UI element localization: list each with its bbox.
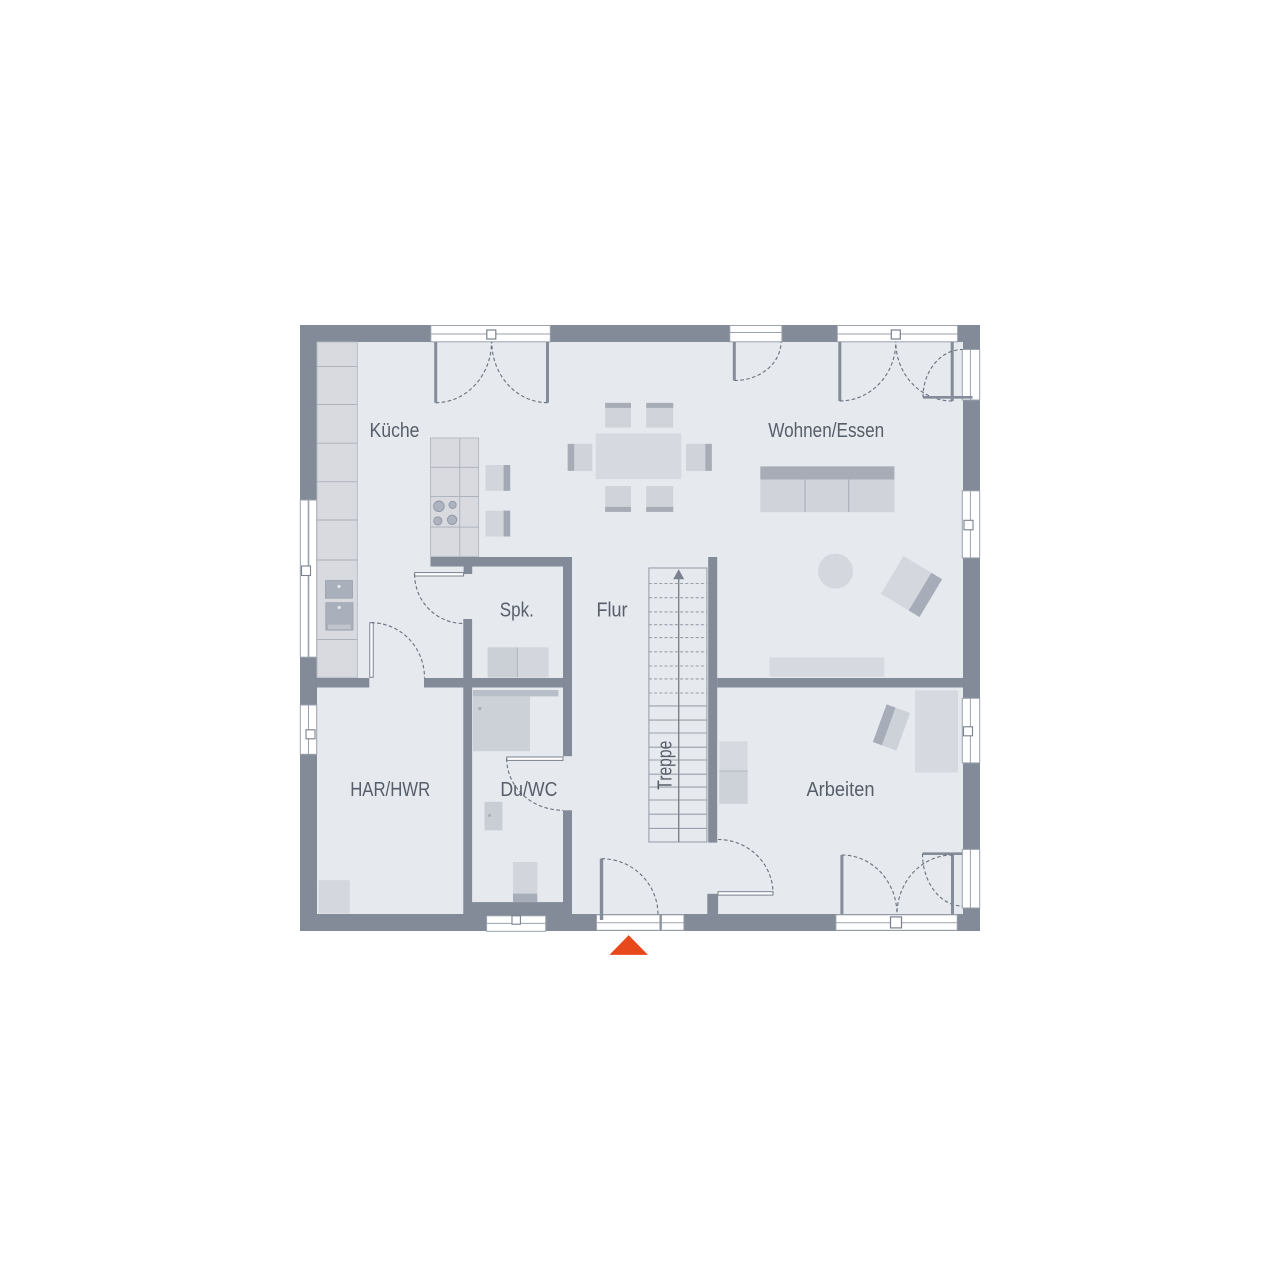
svg-text:Arbeiten: Arbeiten bbox=[807, 779, 875, 801]
svg-text:Küche: Küche bbox=[370, 420, 420, 442]
svg-text:Flur: Flur bbox=[597, 599, 628, 621]
svg-text:HAR/HWR: HAR/HWR bbox=[350, 779, 430, 801]
svg-text:Du/WC: Du/WC bbox=[500, 779, 557, 801]
svg-text:Treppe: Treppe bbox=[655, 741, 677, 790]
svg-text:Wohnen/Essen: Wohnen/Essen bbox=[768, 420, 884, 442]
svg-text:Spk.: Spk. bbox=[500, 599, 534, 621]
